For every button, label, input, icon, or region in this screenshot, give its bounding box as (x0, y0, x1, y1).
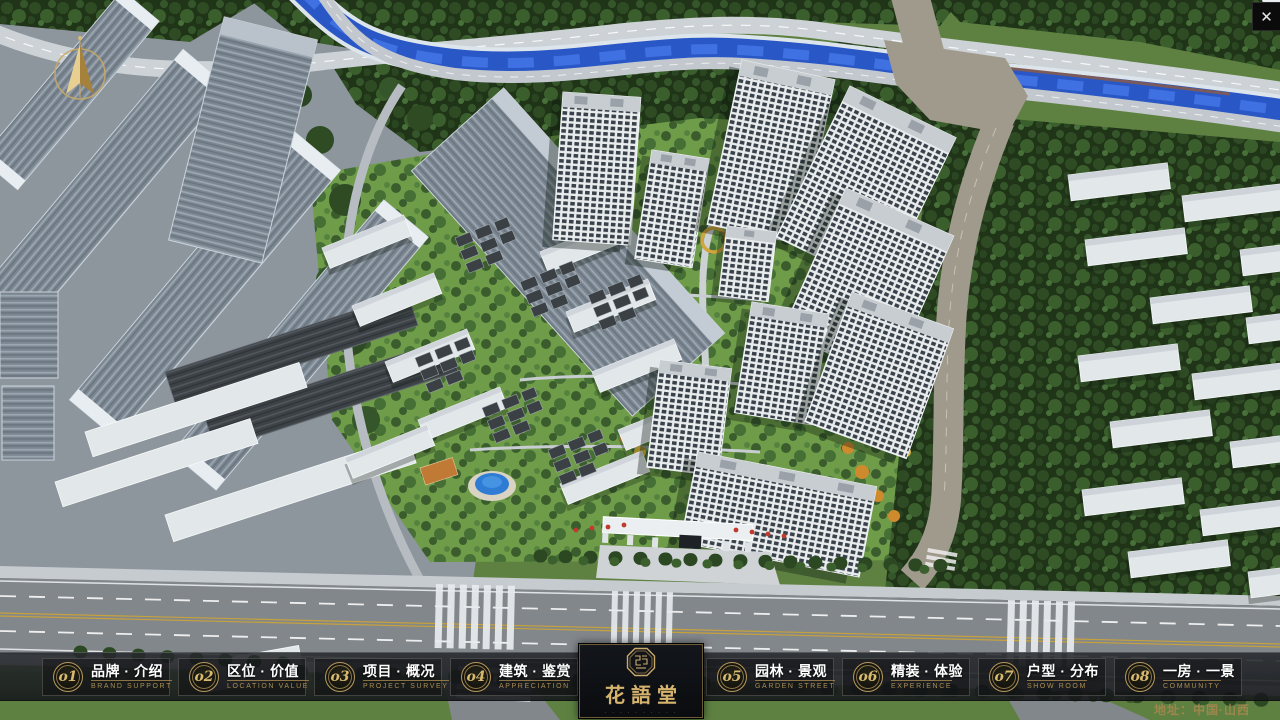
nav-label-zh: 建筑 · 鉴赏 (499, 664, 571, 678)
nav-number-badge: o6 (853, 662, 883, 692)
nav-number-badge: o5 (717, 662, 747, 692)
brand-tagline: · · · · · · · · · · (605, 710, 678, 716)
brand-logo-panel[interactable]: 花語堂 · · · · · · · · · · (578, 643, 704, 719)
close-button[interactable]: ✕ (1252, 2, 1280, 31)
nav-item-location-value[interactable]: o2 区位 · 价值 LOCATION VALUE (178, 658, 306, 696)
nav-number-badge: o3 (325, 662, 355, 692)
nav-label-zh: 一房 · 一景 (1163, 664, 1235, 678)
nav-item-project-overview[interactable]: o3 项目 · 概况 PROJECT SURVEY (314, 658, 442, 696)
nav-label-zh: 区位 · 价值 (227, 664, 299, 678)
brand-seal-icon (626, 647, 656, 677)
nav-label-en: EXPERIENCE (891, 680, 952, 690)
close-icon: ✕ (1260, 8, 1273, 26)
compass-north-indicator (46, 32, 114, 108)
nav-item-garden-landscape[interactable]: o5 园林 · 景观 GARDEN STREET (706, 658, 834, 696)
site-aerial-view (0, 0, 1280, 720)
nav-label-en: BRAND SUPPORT (91, 680, 172, 690)
nav-label-en: PROJECT SURVEY (363, 680, 449, 690)
nav-label-zh: 户型 · 分布 (1027, 664, 1099, 678)
nav-label-en: COMMUNITY (1163, 680, 1221, 690)
nav-number-badge: o1 (53, 662, 83, 692)
project-address: 地址：中国·山西 (1154, 701, 1250, 718)
nav-label-zh: 精装 · 体验 (891, 664, 963, 678)
nav-number-badge: o7 (989, 662, 1019, 692)
nav-label-en: GARDEN STREET (755, 680, 835, 690)
nav-item-interior-experience[interactable]: o6 精装 · 体验 EXPERIENCE (842, 658, 970, 696)
nav-item-room-views[interactable]: o8 一房 · 一景 COMMUNITY (1114, 658, 1242, 696)
sales-presentation-app: ✕ o1 品牌 · 介绍 BRAND SUPPORT o2 区位 · 价值 LO… (0, 0, 1280, 720)
nav-label-en: APPRECIATION (499, 680, 570, 690)
nav-label-en: LOCATION VALUE (227, 680, 309, 690)
nav-item-brand-intro[interactable]: o1 品牌 · 介绍 BRAND SUPPORT (42, 658, 170, 696)
nav-number-badge: o2 (189, 662, 219, 692)
nav-number-badge: o4 (461, 662, 491, 692)
nav-label-zh: 项目 · 概况 (363, 664, 435, 678)
nav-item-architecture[interactable]: o4 建筑 · 鉴赏 APPRECIATION (450, 658, 578, 696)
nav-label-zh: 品牌 · 介绍 (91, 664, 163, 678)
nav-number-badge: o8 (1125, 662, 1155, 692)
nav-label-en: SHOW ROOM (1027, 680, 1087, 690)
nav-item-unit-layouts[interactable]: o7 户型 · 分布 SHOW ROOM (978, 658, 1106, 696)
nav-label-zh: 园林 · 景观 (755, 664, 827, 678)
brand-name: 花語堂 (599, 679, 683, 708)
